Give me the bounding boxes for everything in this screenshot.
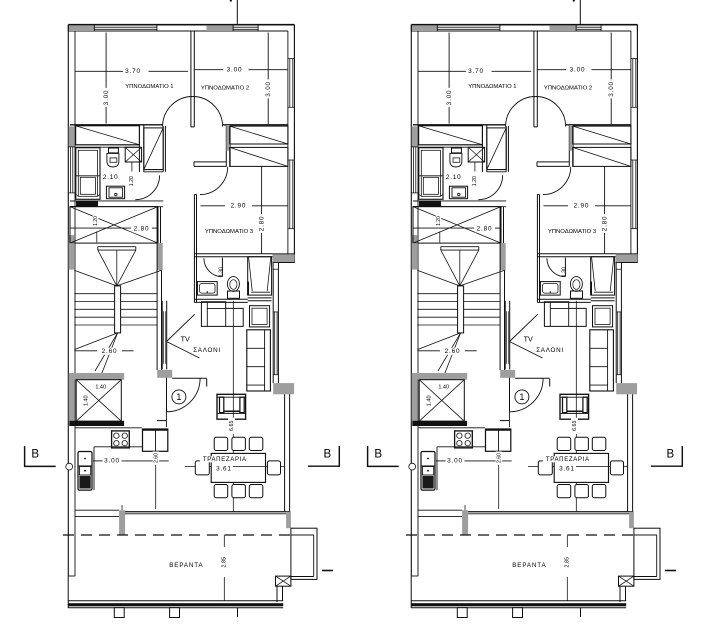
svg-text:TV: TV xyxy=(524,335,533,344)
svg-text:B: B xyxy=(374,449,382,461)
svg-text:B: B xyxy=(666,449,674,461)
svg-text:1.20: 1.20 xyxy=(129,176,135,186)
svg-text:2.10: 2.10 xyxy=(446,174,462,181)
svg-text:1.30: 1.30 xyxy=(561,267,567,277)
svg-text:2.60: 2.60 xyxy=(445,348,461,355)
svg-text:ΤΡΑΠΕΖΑΡΙΑ: ΤΡΑΠΕΖΑΡΙΑ xyxy=(546,457,590,463)
svg-text:ΥΠΝΟΔΩΜΑΤΙΟ 2: ΥΠΝΟΔΩΜΑΤΙΟ 2 xyxy=(544,85,592,91)
svg-text:1: 1 xyxy=(176,392,181,402)
svg-text:3.00: 3.00 xyxy=(608,81,615,97)
svg-text:3.00: 3.00 xyxy=(104,458,120,465)
svg-text:ΥΠΝΟΔΩΜΑΤΙΟ 2: ΥΠΝΟΔΩΜΑΤΙΟ 2 xyxy=(201,85,249,91)
svg-text:2.80: 2.80 xyxy=(134,225,150,232)
svg-text:B: B xyxy=(31,449,39,461)
svg-text:B: B xyxy=(323,449,331,461)
svg-text:2.10: 2.10 xyxy=(103,174,119,181)
svg-text:3.70: 3.70 xyxy=(468,68,484,75)
svg-text:6.65: 6.65 xyxy=(229,421,235,432)
svg-text:2.80: 2.80 xyxy=(477,225,493,232)
svg-text:2.85: 2.85 xyxy=(564,557,570,568)
svg-text:1.40: 1.40 xyxy=(83,395,89,406)
svg-text:1: 1 xyxy=(519,392,524,402)
svg-text:1.20: 1.20 xyxy=(93,216,99,226)
svg-text:3.00: 3.00 xyxy=(265,81,272,97)
svg-text:1.40: 1.40 xyxy=(95,384,106,390)
svg-text:3.00: 3.00 xyxy=(570,66,586,73)
svg-text:2.90: 2.90 xyxy=(231,202,247,209)
svg-text:3.61: 3.61 xyxy=(216,465,232,472)
svg-text:1.40: 1.40 xyxy=(438,384,449,390)
svg-text:6.65: 6.65 xyxy=(572,421,578,432)
svg-text:2.80: 2.80 xyxy=(601,216,608,232)
svg-text:1.30: 1.30 xyxy=(218,267,224,277)
svg-text:3.00: 3.00 xyxy=(446,90,453,106)
svg-text:ΣΑΛΟΝΙ: ΣΑΛΟΝΙ xyxy=(536,347,564,354)
svg-text:2.90: 2.90 xyxy=(574,202,590,209)
svg-text:3.00: 3.00 xyxy=(103,90,110,106)
svg-text:1.20: 1.20 xyxy=(472,176,478,186)
svg-text:3.61: 3.61 xyxy=(559,465,575,472)
svg-text:ΥΠΝΟΔΩΜΑΤΙΟ 1: ΥΠΝΟΔΩΜΑΤΙΟ 1 xyxy=(468,84,516,90)
svg-text:2.80: 2.80 xyxy=(258,216,265,232)
svg-text:3.00: 3.00 xyxy=(227,66,243,73)
svg-text:TV: TV xyxy=(181,335,190,344)
svg-text:ΥΠΝΟΔΩΜΑΤΙΟ 1: ΥΠΝΟΔΩΜΑΤΙΟ 1 xyxy=(125,84,173,90)
svg-text:ΥΠΝΟΔΩΜΑΤΙΟ 3: ΥΠΝΟΔΩΜΑΤΙΟ 3 xyxy=(548,229,597,235)
svg-text:ΤΡΑΠΕΖΑΡΙΑ: ΤΡΑΠΕΖΑΡΙΑ xyxy=(203,457,247,463)
svg-text:2.60: 2.60 xyxy=(496,453,502,463)
svg-text:1.40: 1.40 xyxy=(426,395,432,406)
svg-text:3.00: 3.00 xyxy=(447,458,463,465)
svg-text:ΥΠΝΟΔΩΜΑΤΙΟ 3: ΥΠΝΟΔΩΜΑΤΙΟ 3 xyxy=(205,229,254,235)
svg-text:1.20: 1.20 xyxy=(436,216,442,226)
svg-text:ΒΕΡΑΝΤΑ: ΒΕΡΑΝΤΑ xyxy=(512,562,546,569)
svg-text:2.85: 2.85 xyxy=(221,557,227,568)
svg-text:2.60: 2.60 xyxy=(153,453,159,463)
svg-text:3.70: 3.70 xyxy=(125,68,141,75)
svg-text:ΒΕΡΑΝΤΑ: ΒΕΡΑΝΤΑ xyxy=(169,562,203,569)
svg-text:ΣΑΛΟΝΙ: ΣΑΛΟΝΙ xyxy=(193,347,221,354)
svg-text:2.60: 2.60 xyxy=(102,348,118,355)
